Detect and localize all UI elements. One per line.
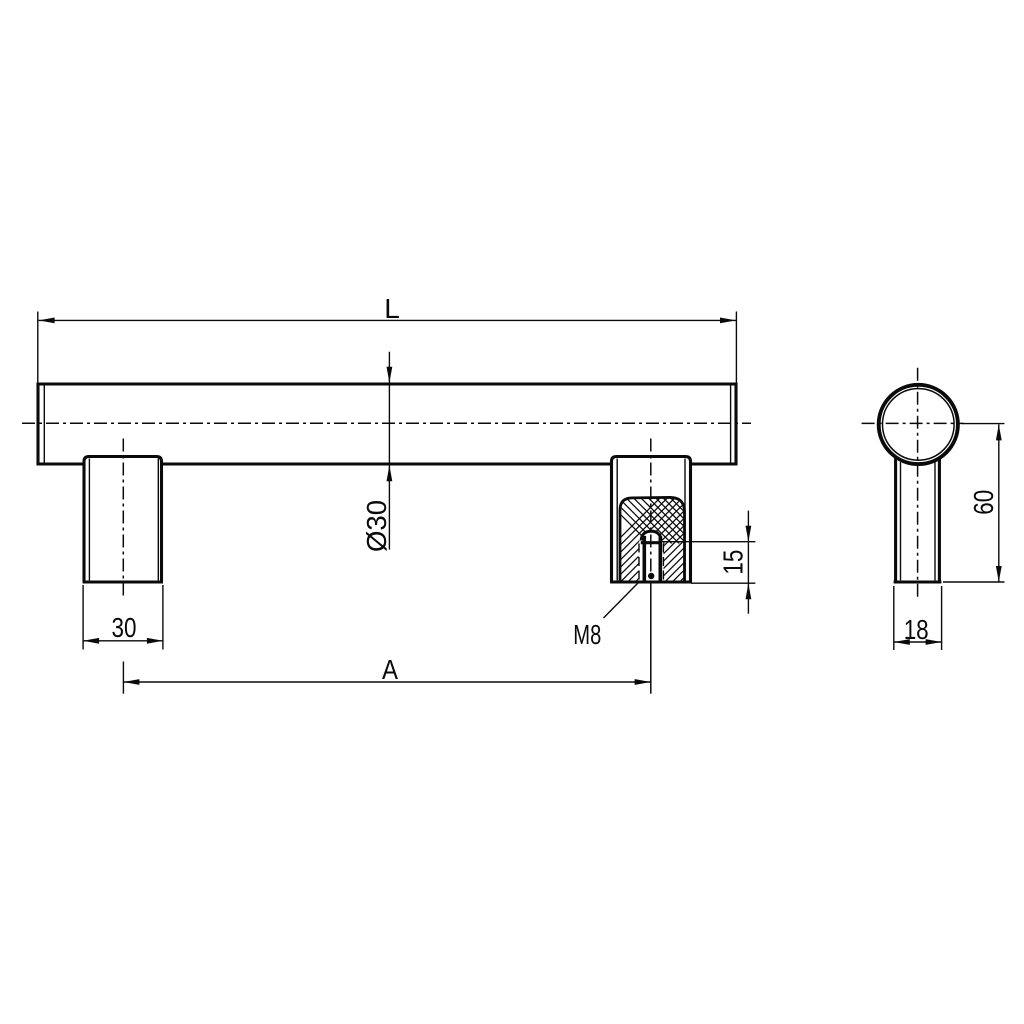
svg-text:15: 15 — [718, 550, 749, 575]
svg-text:A: A — [382, 654, 398, 685]
svg-text:60: 60 — [968, 490, 999, 515]
svg-text:L: L — [384, 293, 400, 324]
svg-text:18: 18 — [904, 614, 929, 645]
svg-text:M8: M8 — [573, 619, 601, 650]
svg-text:30: 30 — [112, 612, 137, 643]
svg-text:Ø30: Ø30 — [361, 500, 392, 552]
